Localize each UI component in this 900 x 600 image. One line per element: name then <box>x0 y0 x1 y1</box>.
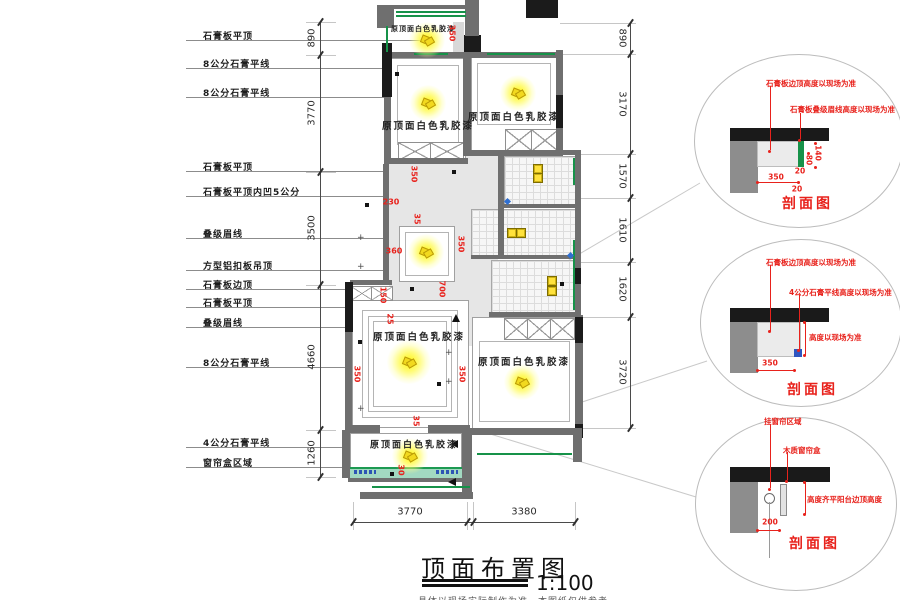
wall <box>383 164 389 282</box>
ceiling-light-icon <box>516 377 528 387</box>
dim-dot <box>807 152 810 155</box>
dimension-value: 1570 <box>617 163 628 188</box>
red-dimension: 350 <box>458 366 467 383</box>
dimension-value: 1610 <box>617 217 628 242</box>
dimension-value: 3720 <box>617 359 628 384</box>
annotation-leader <box>186 289 348 290</box>
dimension-value: 1260 <box>307 440 318 465</box>
wall <box>573 428 582 462</box>
leader-dot <box>797 349 800 352</box>
dimension-value: 1620 <box>617 276 628 301</box>
wardrobe-cell <box>531 129 559 152</box>
wall <box>471 255 575 259</box>
detail-annotation: 石膏板边顶高度以现场为准 <box>766 78 856 89</box>
red-dimension: 35 <box>412 415 421 426</box>
title-underline <box>422 584 528 587</box>
wall <box>575 268 581 284</box>
curtain-hooks-icon <box>354 470 376 474</box>
wall <box>526 0 558 18</box>
column-marker <box>395 72 399 76</box>
detail-annotation: 石膏板叠级眉线高度以现场为准 <box>790 104 895 115</box>
detail-annotation: 高度齐平阳台边顶高度 <box>807 494 882 505</box>
annotation-leader <box>770 424 771 488</box>
extension-line <box>560 54 636 55</box>
extension-line <box>473 502 474 530</box>
annotation-leader <box>186 467 352 468</box>
wall <box>556 150 581 155</box>
section-caption: 剖面图 <box>782 193 833 213</box>
wall <box>730 141 758 193</box>
wardrobe-cell <box>504 318 529 340</box>
wall <box>462 428 472 492</box>
dim-dot <box>756 529 759 532</box>
dim-dot <box>814 166 817 169</box>
wall <box>465 0 479 36</box>
extension-line <box>575 502 576 530</box>
dim-dot <box>756 369 759 372</box>
slab <box>730 308 829 322</box>
cross-marker-icon: + <box>357 235 365 241</box>
curtain-box-line <box>477 453 572 455</box>
curtain-box-line <box>396 15 466 17</box>
detail-dimension: 350 <box>768 173 784 182</box>
dim-line <box>757 182 799 183</box>
ceiling-light-icon <box>422 98 434 108</box>
vent-light-icon <box>516 228 526 238</box>
red-dimension: 700 <box>438 281 447 298</box>
dimension-line <box>320 22 321 477</box>
wall <box>504 204 575 208</box>
red-dimension: 25 <box>386 313 395 324</box>
annotation-leader <box>800 113 801 139</box>
gypsum-board <box>757 141 804 167</box>
paint-label: 原顶面白色乳胶漆 <box>391 24 455 34</box>
section-marker-icon <box>452 314 460 322</box>
wall <box>394 5 466 9</box>
wardrobe-cell <box>505 129 533 152</box>
leader-dot <box>768 330 771 333</box>
dimension-value: 3500 <box>307 215 318 240</box>
red-dimension: 150 <box>379 287 388 304</box>
annotation-leader <box>770 86 771 150</box>
wall <box>468 150 560 156</box>
curtain-hooks-icon <box>436 470 458 474</box>
red-dimension: 230 <box>383 198 400 207</box>
slab <box>730 467 830 482</box>
vent-light-icon <box>547 276 557 286</box>
title-underline <box>422 579 528 582</box>
wall <box>468 428 581 435</box>
detail-annotation: 高度以现场为准 <box>809 332 862 343</box>
cross-marker-icon: + <box>445 350 453 356</box>
wall <box>342 430 350 478</box>
detail-annotation: 4公分石膏平线高度以现场为准 <box>789 287 892 298</box>
dimension-value: 3770 <box>397 507 422 518</box>
wall <box>360 492 473 499</box>
dim-dot <box>756 181 759 184</box>
red-dimension: 35 <box>413 213 422 224</box>
ceiling-light-icon <box>512 88 524 98</box>
wall <box>345 332 352 430</box>
annotation-leader <box>770 265 771 331</box>
dimension-value: 890 <box>617 28 628 47</box>
wall <box>463 52 471 156</box>
wall <box>730 322 758 373</box>
column-marker <box>410 287 414 291</box>
dim-dot <box>793 369 796 372</box>
ceiling-light-icon <box>403 357 415 367</box>
clipped-note: 具体以现场实际制作为准，本图纸仅供参考 <box>418 594 633 600</box>
dim-line <box>805 482 806 514</box>
extension-line <box>353 502 354 530</box>
dim-dot <box>797 181 800 184</box>
column-marker <box>437 382 441 386</box>
detail-dimension: 200 <box>762 518 778 527</box>
wall <box>489 312 581 317</box>
curtain-box-line <box>573 240 575 310</box>
dim-dot <box>803 354 806 357</box>
section-caption: 剖面图 <box>789 533 840 553</box>
section-caption: 剖面图 <box>787 379 838 399</box>
cross-marker-icon: + <box>357 264 365 270</box>
curtain-box-line <box>372 486 470 488</box>
dimension-value: 3380 <box>511 507 536 518</box>
column-marker <box>358 340 362 344</box>
curtain-box <box>780 484 787 516</box>
extension-line <box>467 502 468 530</box>
curtain-box-line <box>386 26 388 52</box>
paint-label: 原顶面白色乳胶漆 <box>382 118 474 132</box>
curtain-box-line <box>487 53 555 55</box>
wardrobe-cell <box>527 318 552 340</box>
cross-marker-icon: + <box>357 406 365 412</box>
wall <box>350 425 380 433</box>
paint-label: 原顶面白色乳胶漆 <box>373 329 465 343</box>
curtain-box-line <box>396 11 466 13</box>
leader-dot <box>785 480 788 483</box>
annotation-leader <box>787 452 788 480</box>
red-dimension: 350 <box>410 166 419 183</box>
wall <box>575 317 583 343</box>
detail-annotation: 石膏板边顶高度以现场为准 <box>766 257 856 268</box>
annotation-leader <box>186 367 352 368</box>
dimension-value: 3770 <box>307 100 318 125</box>
detail-dimension: 140 <box>814 145 823 161</box>
paint-label: 原顶面白色乳胶漆 <box>478 354 570 368</box>
detail-dimension: 20 <box>795 167 805 176</box>
red-dimension: 360 <box>386 247 403 256</box>
dim-dot <box>778 529 781 532</box>
dim-line <box>757 530 779 531</box>
cross-marker-icon: + <box>445 379 453 385</box>
ceiling-light-icon <box>404 451 416 461</box>
section-marker-icon <box>448 478 456 486</box>
dim-dot <box>803 481 806 484</box>
paint-label: 原顶面白色乳胶漆 <box>468 109 560 123</box>
wall <box>350 280 392 285</box>
dim-line <box>757 370 795 371</box>
extension-line <box>560 23 636 24</box>
dim-dot <box>803 321 806 324</box>
room-bathroom2-tiled-ceiling <box>491 260 577 314</box>
red-dimension: 350 <box>457 236 466 253</box>
detail-dimension: 350 <box>762 359 778 368</box>
leader-dot <box>798 139 801 142</box>
annotation-leader <box>186 40 420 41</box>
leader-dot <box>768 150 771 153</box>
drawing-scale: 1:100 <box>536 571 594 595</box>
column-marker <box>452 170 456 174</box>
column-marker <box>390 472 394 476</box>
ceiling-light-icon <box>420 247 432 257</box>
red-dimension: 350 <box>448 25 457 42</box>
column-marker <box>365 203 369 207</box>
dimension-value: 4660 <box>307 344 318 369</box>
slab <box>730 128 829 141</box>
vent-light-icon <box>547 286 557 296</box>
trim-strip <box>798 141 804 167</box>
detail-dimension: 80 <box>805 155 814 165</box>
wall <box>575 152 581 318</box>
leader-dot <box>768 488 771 491</box>
dimension-line <box>630 23 631 428</box>
cabinet-cell <box>351 286 373 301</box>
wall <box>345 282 353 332</box>
red-dimension: 30 <box>397 464 406 475</box>
ceiling-plan-drawing: 石膏板平顶 8公分石膏平线 8公分石膏平线 石膏板平顶 石膏板平顶内凹5公分 叠… <box>0 0 900 600</box>
annotation-leader <box>186 270 398 271</box>
detail-annotation: 木质窗帘盒 <box>783 445 821 456</box>
dimension-value: 3170 <box>617 91 628 116</box>
dim-dot <box>803 513 806 516</box>
ceiling-light-icon <box>421 35 433 45</box>
dim-line <box>805 322 806 356</box>
dimension-value: 890 <box>307 28 318 47</box>
annotation-leader <box>186 327 368 328</box>
dim-dot <box>814 142 817 145</box>
curtain-box-line <box>573 158 575 185</box>
annotation-leader <box>799 295 800 350</box>
wall <box>384 158 468 164</box>
paint-label: 原顶面白色乳胶漆 <box>370 438 458 451</box>
column-marker <box>560 282 564 286</box>
wall <box>730 482 758 533</box>
vent-light-icon <box>533 173 543 183</box>
wardrobe-cell <box>550 318 575 340</box>
red-dimension: 350 <box>353 366 362 383</box>
